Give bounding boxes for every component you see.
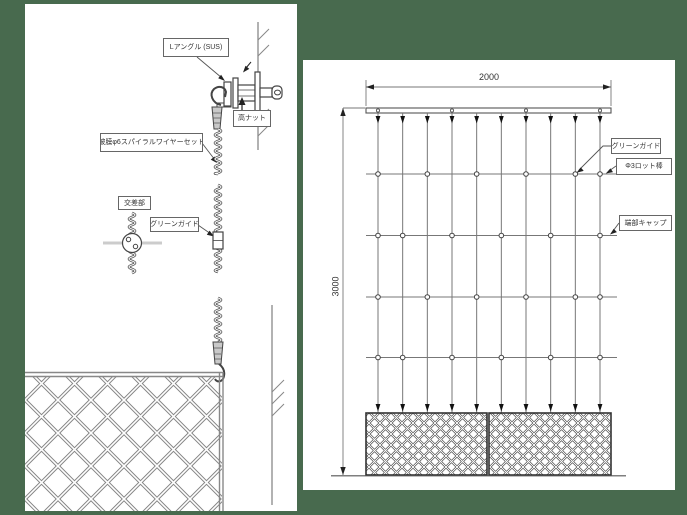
leader-green-guide [577, 146, 614, 173]
detail-drawing-svg [25, 4, 297, 511]
label-high-nut: 高ナット [233, 110, 271, 127]
label-rod: Φ3ロット棒 [616, 158, 672, 175]
leader-l-angle [197, 57, 225, 81]
elevation-sheet: 2000 3000 グリーンガイド Φ3ロット棒 端部キャップ [303, 60, 675, 490]
green-guide-clip [213, 232, 223, 249]
detail-sheet: Lアングル (SUS) 高ナット 被膜φ6スパイラルワイヤーセット 交差部 グリ… [25, 4, 297, 511]
dimension-height [340, 108, 365, 475]
dimension-height-label: 3000 [332, 266, 341, 308]
label-l-angle: Lアングル (SUS) [163, 38, 229, 57]
drawing-canvas: Lアングル (SUS) 高ナット 被膜φ6スパイラルワイヤーセット 交差部 グリ… [0, 0, 687, 515]
pointer-arrow-bolt [243, 62, 251, 73]
leader-end-cap [610, 223, 619, 235]
dimension-width-label: 2000 [468, 73, 510, 82]
lattice-fence [25, 372, 223, 511]
label-green-guide-detail: グリーンガイド [150, 217, 199, 232]
elevation-drawing-svg [303, 60, 675, 490]
top-rail [366, 108, 611, 113]
dimension-width [366, 80, 611, 106]
label-green-guide: グリーンガイド [611, 138, 661, 154]
wall-section-lower [272, 305, 284, 505]
leader-green-guide [198, 225, 214, 237]
label-end-cap: 端部キャップ [619, 215, 672, 231]
label-spiral-wire-set: 被膜φ6スパイラルワイヤーセット [100, 133, 203, 152]
wire-grid [366, 109, 617, 413]
planter-boxes [366, 413, 611, 475]
leader-rod [606, 166, 616, 174]
label-intersection: 交差部 [118, 196, 151, 210]
